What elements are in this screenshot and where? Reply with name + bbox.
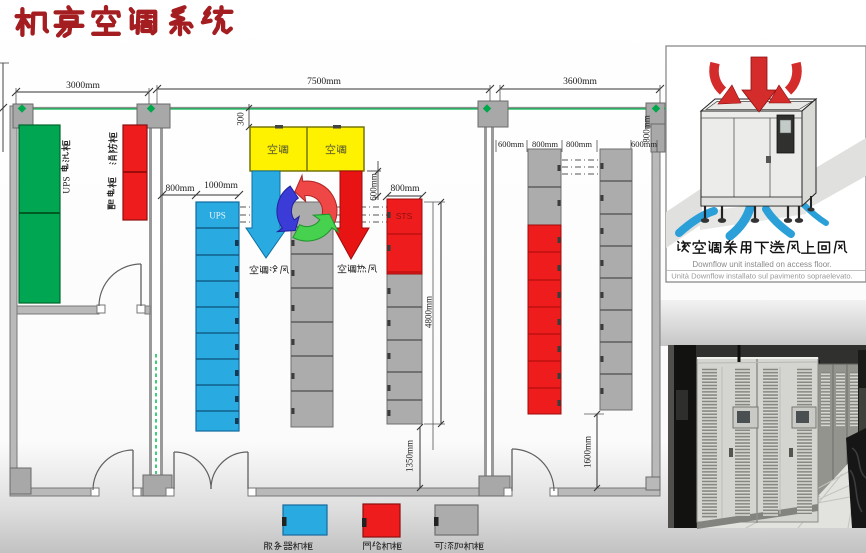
svg-text:UPS: UPS (63, 176, 73, 193)
svg-text:3000mm: 3000mm (66, 81, 100, 91)
svg-text:4800mm: 4800mm (424, 296, 434, 328)
svg-text:800mm: 800mm (165, 184, 195, 194)
svg-text:800mm: 800mm (642, 115, 652, 143)
svg-text:Unità Downflow installato sul: Unità Downflow installato sul pavimento … (671, 272, 853, 281)
svg-text:UPS: UPS (209, 211, 226, 221)
svg-text:600mm: 600mm (369, 173, 379, 201)
svg-text:800mm: 800mm (390, 184, 420, 194)
svg-text:Downflow unit installed on acc: Downflow unit installed on access floor. (692, 260, 831, 269)
svg-text:600mm: 600mm (498, 139, 524, 149)
svg-text:800mm: 800mm (532, 139, 558, 149)
svg-text:1600mm: 1600mm (583, 436, 593, 468)
svg-text:3600mm: 3600mm (563, 77, 597, 87)
svg-text:STS: STS (396, 211, 413, 221)
svg-text:800mm: 800mm (566, 139, 592, 149)
svg-text:1000mm: 1000mm (204, 181, 238, 191)
svg-text:300: 300 (236, 112, 246, 126)
svg-text:7500mm: 7500mm (307, 77, 341, 87)
svg-text:1350mm: 1350mm (405, 440, 415, 472)
